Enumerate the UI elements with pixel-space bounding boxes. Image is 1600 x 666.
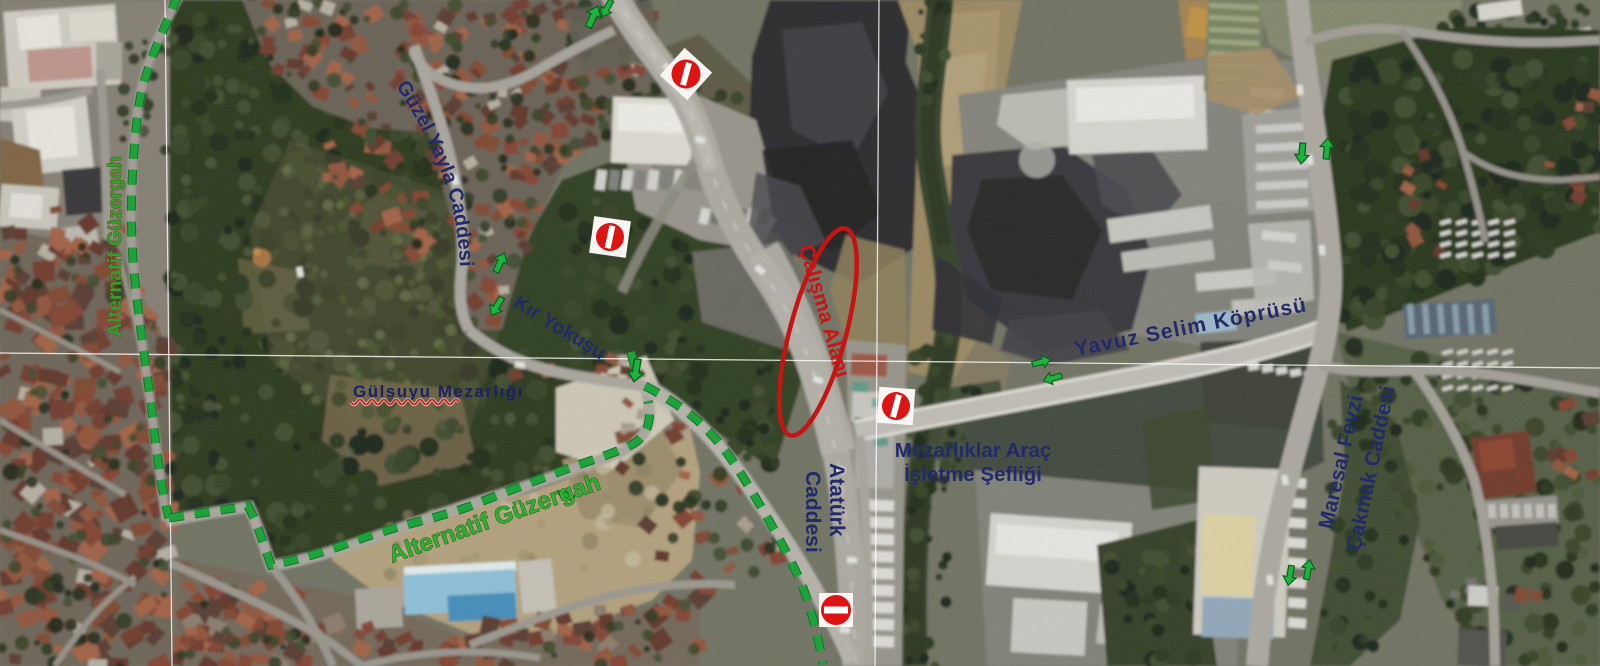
- svg-text:Caddesi: Caddesi: [801, 471, 824, 553]
- svg-text:Alternatif Güzergah: Alternatif Güzergah: [104, 156, 126, 337]
- svg-text:İşletme Şefliği: İşletme Şefliği: [904, 463, 1042, 486]
- svg-text:Mezarlıklar Araç: Mezarlıklar Araç: [895, 439, 1052, 462]
- svg-text:Atatürk: Atatürk: [825, 463, 848, 537]
- svg-text:Gülsuyu Mezarlığı: Gülsuyu Mezarlığı: [353, 382, 524, 401]
